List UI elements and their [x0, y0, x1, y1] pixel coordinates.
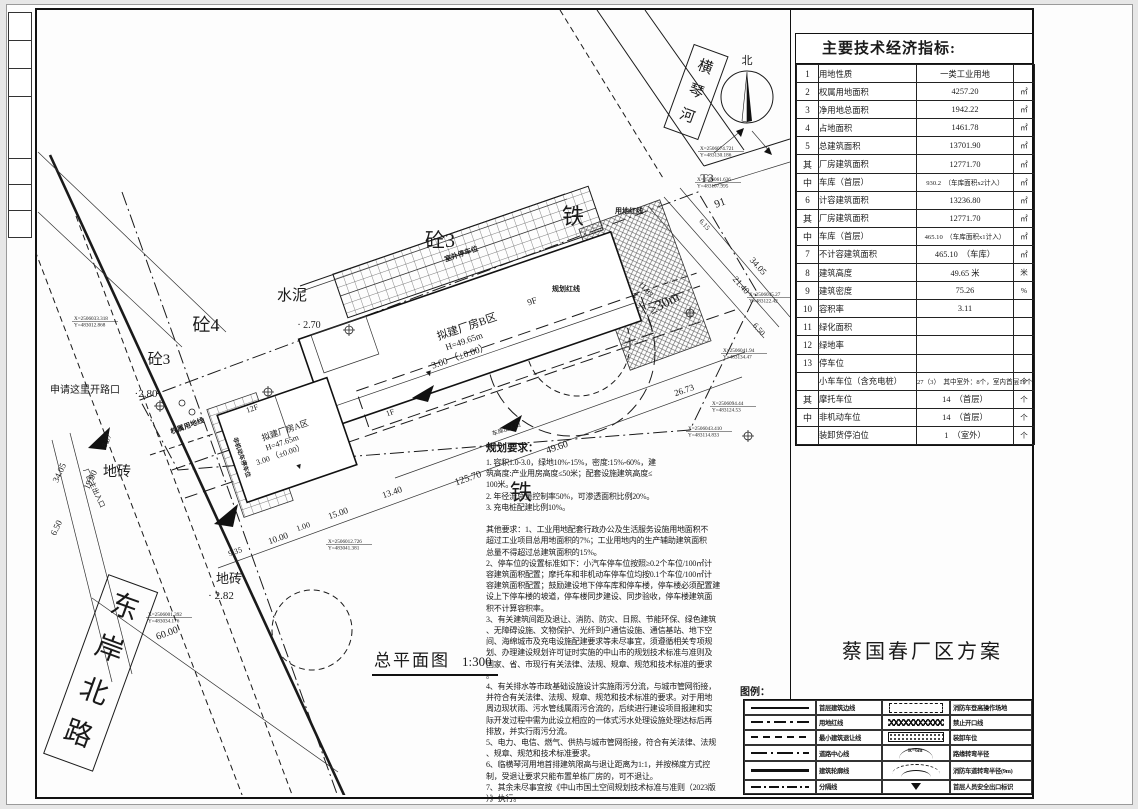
indicator-label: 权属用地面积	[819, 83, 917, 101]
notes-line: 1. 容积1.0-3.0，绿地10%-15%，密度:15%-60%，建	[486, 457, 769, 468]
legend-symbol-left	[744, 715, 816, 729]
legend-symbol-left	[744, 700, 816, 715]
indicator-label: 不计容建筑面积	[819, 245, 917, 263]
indicator-row: 12绿地率	[797, 336, 1035, 354]
drawing-label: 91	[713, 196, 727, 211]
indicator-row: 1用地性质一类工业用地	[797, 65, 1035, 83]
drawing-label: 26.73	[673, 382, 696, 398]
indicator-row: 2权属用地面积4257.20㎡	[797, 83, 1035, 101]
notes-line: 际开发过程中需为此设立相应的一体式污水处理设施处理达标后再	[486, 715, 769, 726]
indicator-value: 4257.20	[917, 83, 1014, 101]
drawing-label: X=2506074.721	[700, 146, 734, 152]
drawing-label: X=2506041.94	[723, 348, 755, 354]
binding-strip-cell	[8, 12, 32, 42]
legend-table: 首层建筑边线消防车登高操作场地用地红线禁止开口线最小建筑退让线装卸车位道路中心线…	[743, 699, 1033, 795]
indicator-row: 装卸货停泊位1 （室外）个	[797, 426, 1035, 444]
indicator-unit	[1014, 65, 1035, 83]
scanned-site-plan-sheet: { "project": {"title": "蔡国春厂区方案"}, "plan…	[0, 0, 1138, 809]
s-drect-icon	[889, 703, 943, 713]
indicator-label: 摩托车位	[819, 390, 917, 408]
indicator-label: 净用地总面积	[819, 101, 917, 119]
indicator-row: 4占地面积1461.78㎡	[797, 119, 1035, 137]
drawing-label: 地砖	[216, 571, 242, 586]
legend-symbol-left	[744, 745, 816, 761]
indicator-row: 11绿化面积	[797, 318, 1035, 336]
notes-line: 周边现状雨、污水管线属雨污合流的，后续进行建设项目报建和实	[486, 703, 769, 714]
s-zigzag-icon	[888, 719, 944, 726]
indicator-unit	[1014, 300, 1035, 318]
drawing-label: 砼3	[148, 351, 171, 368]
north-compass	[714, 71, 773, 155]
s-tri-icon	[911, 783, 921, 790]
indicator-unit: 个	[1014, 426, 1035, 444]
notes-line: 3. 充电桩配建比例10%。	[486, 502, 769, 513]
drawing-label: 60.00	[155, 625, 180, 643]
legend-label-right: 首层人员安全出口标识	[950, 780, 1032, 794]
notes-line: 设上下停车楼的坡道，停车楼同步建设、同步验收，停车楼建筑面	[486, 591, 769, 602]
indicator-unit: ㎡	[1014, 245, 1035, 263]
indicator-value: 1942.22	[917, 101, 1014, 119]
indicator-label: 建筑高度	[819, 264, 917, 282]
notes-line: 其他要求：1、工业用地配套行政办公及生活服务设施用地面积不	[486, 524, 769, 535]
drawing-label: X=2506012.726	[328, 539, 362, 545]
drawing-label: 10.00	[267, 530, 290, 546]
indicator-unit: 个	[1014, 408, 1035, 426]
legend-symbol-left	[744, 761, 816, 779]
drawing-label: ·2.80	[135, 388, 158, 400]
binding-strip-cell	[8, 40, 32, 70]
notes-line: 6、临横琴河用地首排建筑限高与退让距离为1:1，并按梯度方式控	[486, 759, 769, 770]
indicator-row: 其厂房建筑面积12771.70㎡	[797, 209, 1035, 227]
indicator-label: 容积率	[819, 300, 917, 318]
s-arc2-icon	[891, 764, 941, 777]
indicator-value: 465.10 （车库）	[917, 245, 1014, 263]
indicators-title: 主要技术经济指标:	[796, 34, 1032, 64]
notes-line: 7、其余未尽事宜按《中山市国土空间规划技术标准与准则（2023版	[486, 782, 769, 793]
plan-title-block: 总平面图 1:300	[372, 646, 498, 676]
notes-line: 、无障碍设施、文物保护、光纤到户通信设施、通信基站、地下空	[486, 625, 769, 636]
entrance-arrow	[214, 504, 238, 527]
indicator-label: 占地面积	[819, 119, 917, 137]
drawing-label: Y=483124.53	[712, 408, 741, 414]
notes-line: 2. 年径流总量控制率50%，可渗透面积比例20%。	[486, 491, 769, 502]
indicator-row: 7不计容建筑面积465.10 （车库）㎡	[797, 245, 1035, 263]
indicator-label: 停车位	[819, 354, 917, 372]
notes-line: 排放，并实行雨污分流。	[486, 726, 769, 737]
drawing-label: · 2.70	[297, 320, 320, 331]
indicator-unit: 米	[1014, 264, 1035, 282]
drawing-label: 15.00	[327, 505, 350, 521]
indicator-unit: ㎡	[1014, 227, 1035, 245]
legend-label-right: 路缘转弯半径	[950, 745, 1032, 761]
drawing-label: X=2506043.410	[688, 426, 722, 432]
drawing-label: 用地红线	[615, 206, 643, 215]
notes-line: 划、办理建设规划许可证时实施的中山市的规划技术标准与准则及	[486, 647, 769, 658]
river-dashed-line	[560, 10, 663, 178]
indicator-num: 8	[797, 264, 819, 282]
legend-label-right: 消防车登高操作场地	[950, 700, 1032, 715]
drawing-label: Y=483130.186	[700, 153, 732, 159]
legend-label-left: 道路中心线	[816, 745, 882, 761]
legend-label-right: 消防车道转弯半径(9m)	[950, 761, 1032, 779]
drawing-label: 125.70	[453, 469, 483, 488]
indicator-label: 车库（首层）	[819, 173, 917, 191]
legend-symbol-right	[882, 730, 950, 745]
s-center-icon	[751, 752, 809, 753]
legend-label-left: 建筑轮廓线	[816, 761, 882, 779]
indicator-label: 计容建筑面积	[819, 191, 917, 209]
legend-symbol-left	[744, 730, 816, 745]
indicator-unit: ㎡	[1014, 101, 1035, 119]
river-bank-line	[597, 10, 704, 166]
indicator-label: 装卸货停泊位	[819, 426, 917, 444]
drawing-label: 权属用地线	[168, 415, 205, 436]
indicator-unit: %	[1014, 282, 1035, 300]
notes-line: 总量不得超过总建筑面积的15%。	[486, 547, 769, 558]
notes-line: 2、停车位的设置标准如下：小汽车停车位按照≥0.2个车位/100㎡计	[486, 558, 769, 569]
drawing-label: 地砖	[103, 464, 131, 480]
drawing-label: X=2506001.392	[148, 612, 182, 618]
drawing-label: Y=483122.42	[749, 299, 778, 305]
turning-arc	[272, 590, 352, 670]
notes-line: 。	[486, 670, 769, 681]
drawing-label: 砼3	[425, 229, 455, 252]
indicator-row: 6计容建筑面积13236.80㎡	[797, 191, 1035, 209]
indicator-num	[797, 372, 819, 390]
binding-strip-cell	[8, 68, 32, 98]
drawing-label: 34.05	[748, 255, 769, 277]
indicator-value: 27（3） 其中室外：8个，室内首层19个	[917, 372, 1014, 390]
indicator-num: 5	[797, 137, 819, 155]
indicator-value	[917, 318, 1014, 336]
s-divider-icon	[751, 786, 809, 788]
legend-title: 图例：	[740, 683, 770, 698]
indicator-unit: ㎡	[1014, 209, 1035, 227]
planning-notes: 规划要求： 1. 容积1.0-3.0，绿地10%-15%，密度:15%-60%，…	[486, 440, 769, 804]
binding-strip-cell	[8, 210, 32, 238]
indicator-num: 中	[797, 408, 819, 426]
indicator-unit: ㎡	[1014, 191, 1035, 209]
binding-strip-cell	[8, 158, 32, 186]
indicator-num: 中	[797, 227, 819, 245]
indicator-value: 14 （首层）	[917, 408, 1014, 426]
drawing-label: X=2506033.318	[74, 316, 108, 322]
project-title: 蔡国春厂区方案	[842, 635, 1003, 664]
indicator-value: 12771.70	[917, 209, 1014, 227]
notes-line: 3、有关建筑间距及退让、消防、防灾、日照、节能环保、绿色建筑	[486, 614, 769, 625]
indicator-num	[797, 426, 819, 444]
indicator-value	[917, 336, 1014, 354]
indicator-unit: ㎡	[1014, 137, 1035, 155]
drawing-label: 6.50	[751, 321, 767, 337]
legend-symbol-right	[882, 715, 950, 729]
indicator-row: 中车库（首层）930.2 （车库面积x2计入）㎡	[797, 173, 1035, 191]
indicator-value: 13236.80	[917, 191, 1014, 209]
indicator-num: 其	[797, 390, 819, 408]
indicator-label: 绿地率	[819, 336, 917, 354]
indicator-num: 11	[797, 318, 819, 336]
drawing-label: 6.15	[697, 217, 711, 232]
legend-label-left: 最小建筑退让线	[816, 730, 882, 745]
notes-line	[486, 513, 769, 524]
indicator-row: 中非机动车位14 （首层）个	[797, 408, 1035, 426]
indicator-unit: ㎡	[1014, 83, 1035, 101]
notes-line: 、规章、规范和技术标准要求。	[486, 748, 769, 759]
drawing-label: Y=483107.995	[697, 184, 729, 190]
indicator-num: 4	[797, 119, 819, 137]
legend-label-left: 用地红线	[816, 715, 882, 729]
notes-line: 并符合有关法律、法规、规章、规范和技术标准的要求。对于用地	[486, 692, 769, 703]
indicator-value: 49.65 米	[917, 264, 1014, 282]
indicator-label: 非机动车位	[819, 408, 917, 426]
indicator-value: 13701.90	[917, 137, 1014, 155]
notes-line: 容建筑面积配置；鼓励建设地下停车库和停车楼，停车楼必须配置建	[486, 580, 769, 591]
legend-symbol-right	[882, 700, 950, 715]
drawing-label: 车库出入口	[491, 420, 522, 437]
legend-label-left: 首层建筑边线	[816, 700, 882, 715]
river-bank-line	[645, 10, 744, 150]
drawing-label: 申请这里开路口	[50, 383, 120, 396]
legend-symbol-left	[744, 780, 816, 794]
indicator-row: 5总建筑面积13701.90㎡	[797, 137, 1035, 155]
s-line-icon	[751, 707, 809, 709]
legend-symbol-right	[882, 761, 950, 779]
indicator-value: 3.11	[917, 300, 1014, 318]
indicator-row: 其厂房建筑面积12771.70㎡	[797, 155, 1035, 173]
indicator-num: 其	[797, 155, 819, 173]
notes-line: 100米。	[486, 479, 769, 490]
drawing-label: 北	[742, 54, 753, 67]
indicator-unit: 个	[1014, 390, 1035, 408]
indicator-num: 6	[797, 191, 819, 209]
drawing-label: 6.50	[48, 518, 64, 537]
drawing-label: 规划红线	[552, 284, 580, 293]
indicator-num: 中	[797, 173, 819, 191]
drawing-label: 1.00	[295, 520, 311, 533]
indicator-row: 小车车位（含充电桩）27（3） 其中室外：8个，室内首层19个个	[797, 372, 1035, 390]
drawing-label: Y=483034.176	[148, 619, 180, 625]
indicator-num: 7	[797, 245, 819, 263]
indicator-value: 12771.70	[917, 155, 1014, 173]
indicator-row: 13停车位	[797, 354, 1035, 372]
indicator-value: 1 （室外）	[917, 426, 1014, 444]
notes-title: 规划要求：	[486, 440, 769, 455]
indicator-num: 2	[797, 83, 819, 101]
drawing-label: 水泥	[277, 287, 307, 304]
indicator-value: 465.10 （车库面积x1计入）	[917, 227, 1014, 245]
indicator-num: 其	[797, 209, 819, 227]
notes-line: 4、有关排水等市政基础设施设计实施雨污分流，与城市管网衔接，	[486, 681, 769, 692]
notes-line: ）》执行。	[486, 793, 769, 804]
indicator-label: 厂房建筑面积	[819, 209, 917, 227]
plan-title: 总平面图	[374, 651, 450, 670]
indicator-value: 一类工业用地	[917, 65, 1014, 83]
s-dash-icon	[751, 736, 809, 738]
binding-strip-cell	[8, 184, 32, 212]
drawing-label: · 2.82	[208, 590, 234, 602]
indicator-label: 总建筑面积	[819, 137, 917, 155]
indicator-num: 1	[797, 65, 819, 83]
legend-label-left: 分隔线	[816, 780, 882, 794]
legend-symbol-right	[882, 780, 950, 794]
indicator-unit	[1014, 336, 1035, 354]
drawing-label: 13.40	[381, 484, 404, 500]
indicator-num: 13	[797, 354, 819, 372]
indicator-label: 用地性质	[819, 65, 917, 83]
drawing-label: 北	[75, 673, 112, 712]
leader-line	[38, 212, 182, 347]
indicator-row: 10容积率3.11	[797, 300, 1035, 318]
drawing-label: X=2506061.636	[697, 177, 731, 183]
indicator-num: 3	[797, 101, 819, 119]
legend-label-right: 禁止开口线	[950, 715, 1032, 729]
drawing-label: X=2506094.44	[712, 401, 744, 407]
indicator-unit: ㎡	[1014, 119, 1035, 137]
indicator-label: 厂房建筑面积	[819, 155, 917, 173]
notes-line: 超过工业项目总用地面积的7%；工业用地内的生产辅助建筑面积	[486, 535, 769, 546]
drawing-label: 34.05	[50, 461, 68, 484]
legend-label-right: 装卸车位	[950, 730, 1032, 745]
drawing-label: 砼4	[193, 315, 220, 335]
indicator-num: 9	[797, 282, 819, 300]
s-hatch-icon	[888, 732, 944, 742]
indicator-unit	[1014, 318, 1035, 336]
indicator-unit	[1014, 354, 1035, 372]
indicators-panel: 主要技术经济指标: 1用地性质一类工业用地2权属用地面积4257.20㎡3净用地…	[795, 33, 1033, 446]
indicator-row: 3净用地总面积1942.22㎡	[797, 101, 1035, 119]
legend-symbol-text: R=6m	[908, 748, 922, 754]
legend-symbol-right: R=6m	[882, 745, 950, 761]
arc-inner	[901, 770, 931, 777]
indicator-label: 绿化面积	[819, 318, 917, 336]
indicator-value: 1461.78	[917, 119, 1014, 137]
notes-line: 制，受退让要求只能布置单栋厂房的，可不退让。	[486, 771, 769, 782]
notes-line: 积不计算容积率。	[486, 603, 769, 614]
drawing-label: Y=483041.381	[328, 546, 360, 552]
notes-line: 5、电力、电信、燃气、供热与城市管网衔接，符合有关法律、法规	[486, 737, 769, 748]
s-thick-icon	[751, 769, 809, 772]
drawing-label: 1F	[385, 407, 396, 418]
drawing-label: 琴	[686, 82, 706, 102]
indicator-value	[917, 354, 1014, 372]
notes-line: 筑高度:产业用房高度≤50米；配套设施建筑高度≤	[486, 468, 769, 479]
drawing-label: 铁	[562, 204, 584, 229]
drawing-label: Y=483114.833	[688, 433, 720, 439]
s-arc-icon: R=6m	[899, 748, 933, 759]
notes-line: 容建筑面积配置；摩托车和非机动车停车位均按0.1个车位/100㎡计	[486, 569, 769, 580]
drawing-label: 横	[695, 57, 715, 78]
indicator-row: 中车库（首层）465.10 （车库面积x1计入）㎡	[797, 227, 1035, 245]
indicator-num: 12	[797, 336, 819, 354]
indicator-value: 75.26	[917, 282, 1014, 300]
indicator-num: 10	[797, 300, 819, 318]
indicator-unit: ㎡	[1014, 173, 1035, 191]
indicator-value: 14 （首层）	[917, 390, 1014, 408]
binding-strip-cell	[8, 96, 32, 160]
indicator-value: 930.2 （车库面积x2计入）	[917, 173, 1014, 191]
indicator-label: 建筑密度	[819, 282, 917, 300]
indicator-label: 车库（首层）	[819, 227, 917, 245]
indicator-unit: ㎡	[1014, 155, 1035, 173]
panel-divider-line	[790, 8, 791, 710]
indicator-row: 其摩托车位14 （首层）个	[797, 390, 1035, 408]
drawing-label: X=2506045.27	[749, 292, 781, 298]
indicators-table: 1用地性质一类工业用地2权属用地面积4257.20㎡3净用地总面积1942.22…	[796, 64, 1035, 445]
drawing-label: Y=483134.47	[723, 355, 752, 361]
drawing-label: 河	[677, 105, 697, 126]
indicator-row: 9建筑密度75.26%	[797, 282, 1035, 300]
indicator-label: 小车车位（含充电桩）	[819, 372, 917, 390]
notes-line: 间、海绵城市及充电设施配建要求等未尽事宜，须遵循相关专项规	[486, 636, 769, 647]
drawing-label: 路	[60, 714, 97, 754]
indicator-row: 8建筑高度49.65 米米	[797, 264, 1035, 282]
notes-line: 国家、省、市现行有关法律、法规、规章、规范和技术标准的要求	[486, 659, 769, 670]
drawing-label: Y=483012.868	[74, 323, 106, 329]
s-dashdot-icon	[751, 721, 809, 723]
leader-line	[38, 152, 226, 332]
